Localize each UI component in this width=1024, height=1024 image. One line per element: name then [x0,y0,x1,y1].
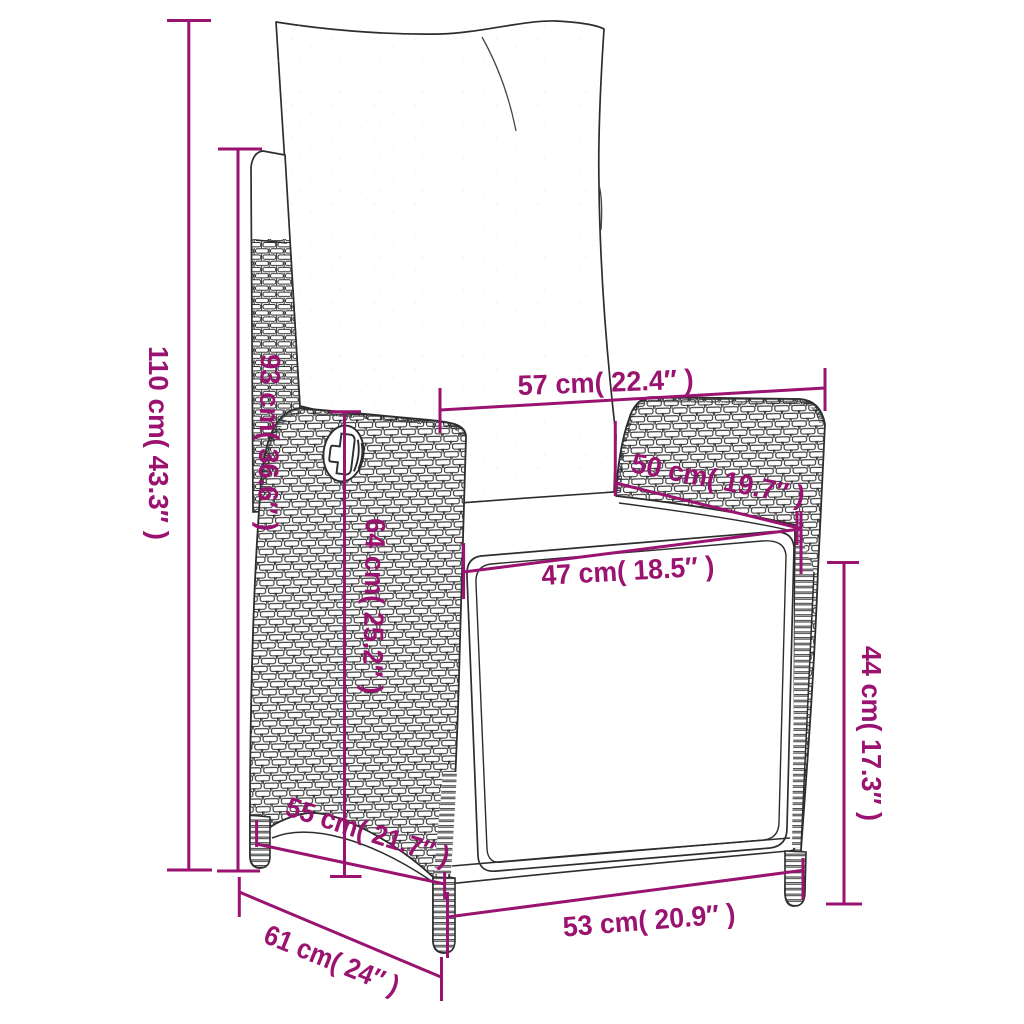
svg-text:110 cm( 43.3″ ): 110 cm( 43.3″ ) [143,346,174,540]
svg-text:44 cm( 17.3″ ): 44 cm( 17.3″ ) [856,646,887,821]
svg-text:93 cm( 36.6″ ): 93 cm( 36.6″ ) [252,354,286,532]
svg-text:57 cm( 22.4″ ): 57 cm( 22.4″ ) [517,364,694,401]
svg-text:64 cm( 25.2″ ): 64 cm( 25.2″ ) [357,518,391,695]
